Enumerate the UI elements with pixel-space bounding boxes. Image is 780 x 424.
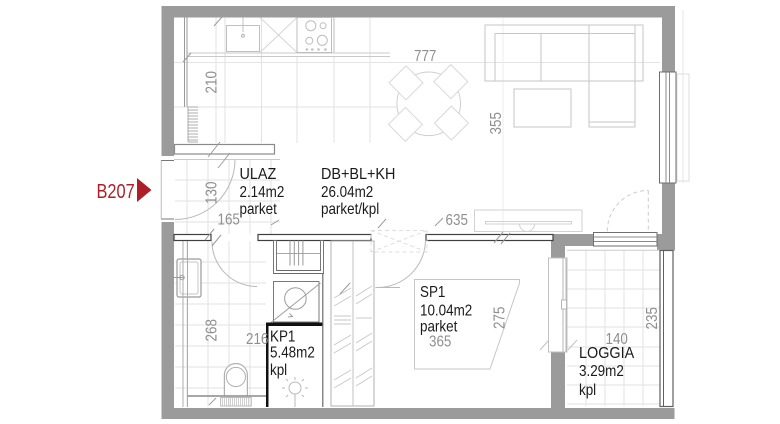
svg-text:365: 365: [429, 334, 451, 351]
svg-text:355: 355: [488, 112, 505, 134]
svg-text:216: 216: [246, 331, 268, 348]
svg-text:kpl: kpl: [579, 382, 596, 399]
svg-text:parket/kpl: parket/kpl: [321, 201, 379, 218]
svg-text:DB+BL+KH: DB+BL+KH: [321, 165, 395, 183]
svg-text:3.29m2: 3.29m2: [579, 363, 624, 380]
svg-text:777: 777: [414, 48, 436, 65]
svg-text:parket: parket: [239, 201, 276, 218]
svg-text:210: 210: [204, 71, 221, 93]
svg-text:26.04m2: 26.04m2: [321, 184, 373, 201]
svg-text:KP1: KP1: [270, 329, 295, 346]
svg-text:140: 140: [606, 331, 628, 348]
svg-text:ULAZ: ULAZ: [240, 165, 277, 183]
svg-text:165: 165: [217, 212, 239, 229]
svg-text:B207: B207: [97, 179, 135, 202]
svg-text:268: 268: [204, 319, 221, 341]
svg-text:2.14m2: 2.14m2: [239, 184, 284, 201]
svg-text:235: 235: [644, 307, 661, 329]
svg-text:130: 130: [204, 182, 221, 204]
svg-text:kpl: kpl: [270, 362, 287, 379]
svg-text:10.04m2: 10.04m2: [420, 303, 472, 320]
svg-text:635: 635: [446, 212, 468, 229]
svg-text:SP1: SP1: [420, 284, 445, 301]
svg-text:275: 275: [492, 307, 509, 329]
svg-text:5.48m2: 5.48m2: [270, 345, 315, 362]
